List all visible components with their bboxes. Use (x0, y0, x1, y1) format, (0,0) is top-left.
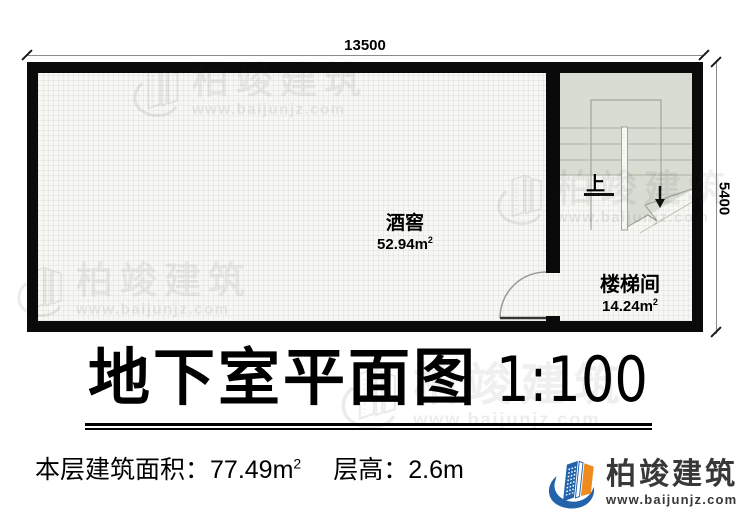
room-area-value: 52.94m (377, 236, 428, 253)
info-area-value: 77.49m (210, 456, 293, 484)
room-name: 酒窖 (350, 213, 460, 235)
brand-name: 柏竣建筑 (606, 458, 738, 491)
room-area: 52.94m2 (350, 235, 460, 253)
title-underline-thin (85, 428, 652, 430)
brand-url: www.baijunjz.com (606, 492, 738, 508)
drawing-scale: 1:100 (496, 349, 648, 411)
interior-wall (546, 73, 560, 273)
room-area: 14.24m2 (575, 297, 685, 315)
room-name: 楼梯间 (575, 274, 685, 297)
room-area-sup: 2 (653, 297, 658, 307)
brand-logo: 柏竣建筑 www.baijunjz.com (544, 452, 738, 514)
info-area-sup: 2 (293, 456, 301, 472)
room-area-sup: 2 (428, 235, 433, 245)
stair-up-label: 上 (586, 169, 605, 196)
stair-up-underline (584, 193, 614, 196)
info-height-value: 2.6m (408, 456, 464, 484)
drawing-title: 地下室平面图 (88, 348, 478, 410)
interior-wall-stub (546, 316, 560, 322)
floorplan-page: 13500 5400 酒窖 52.94m2 (0, 0, 750, 530)
title-underline-thick (85, 423, 652, 426)
floor-info-line: 本层建筑面积：77.49m2层高：2.6m (35, 450, 464, 486)
info-height-label: 层高： (333, 456, 408, 484)
room-label-stairwell: 楼梯间 14.24m2 (575, 274, 685, 315)
brand-building-icon (544, 452, 598, 514)
dimension-right-value: 5400 (716, 177, 733, 221)
dimension-top-value: 13500 (315, 37, 415, 54)
dimension-line-top (27, 55, 704, 56)
info-area-label: 本层建筑面积： (35, 456, 210, 484)
room-area-value: 14.24m (602, 298, 653, 315)
room-label-wine-cellar: 酒窖 52.94m2 (350, 213, 460, 253)
